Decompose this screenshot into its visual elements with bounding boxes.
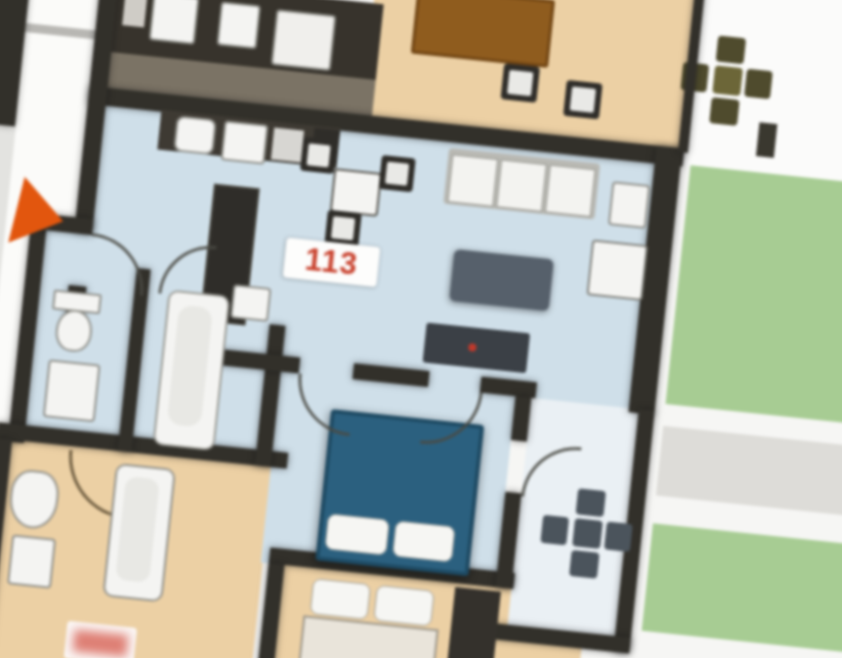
neighbor-bathtub-basin (115, 476, 160, 583)
side-table (608, 181, 650, 229)
kitchen-sink (173, 115, 217, 155)
path-gray-band (656, 426, 842, 527)
patio-planter (756, 122, 777, 158)
bath-sink (43, 359, 101, 422)
neighbor-chair (563, 80, 603, 120)
tv-indicator (468, 343, 477, 352)
neighbor-kitchen-appliance (122, 0, 147, 27)
neighbor-kitchen-worktop (271, 9, 337, 71)
terrace-table (572, 518, 603, 549)
unit-number-text: 113 (303, 242, 359, 283)
patio-chair (709, 97, 740, 126)
sofa-cushion (545, 165, 596, 218)
neighbor-chair (500, 63, 540, 103)
dining-chair (378, 155, 415, 192)
patio-chair (716, 35, 747, 64)
partial-unit-label-blur (64, 621, 138, 658)
neighbor-kitchen-stove (217, 1, 261, 49)
sofa-cushion (496, 159, 547, 212)
armchair (586, 239, 648, 301)
kitchen-appliance (271, 128, 304, 163)
coffee-table (449, 249, 554, 311)
bathtub-basin (167, 305, 213, 428)
floorplan-canvas[interactable]: 113 (0, 0, 842, 658)
partial-label-ink (72, 629, 128, 657)
lawn-lower (642, 523, 842, 658)
terrace-chair (569, 550, 600, 579)
dining-chair (300, 137, 337, 174)
washbasin (230, 284, 271, 322)
neighbor-kitchen-sink (149, 0, 200, 45)
neighbor-bed-pillow (373, 585, 434, 627)
sofa-cushion (447, 154, 498, 207)
bed-pillow (392, 520, 455, 562)
terrace-chair (540, 515, 569, 546)
bed-pillow (324, 513, 389, 555)
lawn-upper (666, 165, 842, 435)
kitchen-stove (221, 120, 269, 164)
neighbor-bed-pillow (310, 578, 371, 620)
terrace-chair (604, 521, 633, 552)
patio-chair (744, 69, 773, 100)
neighbor-sink (7, 534, 56, 588)
terrace-chair (575, 488, 606, 517)
floorplan-viewport: 113 (0, 0, 842, 658)
dining-table (330, 168, 382, 217)
patio-table (712, 65, 743, 96)
